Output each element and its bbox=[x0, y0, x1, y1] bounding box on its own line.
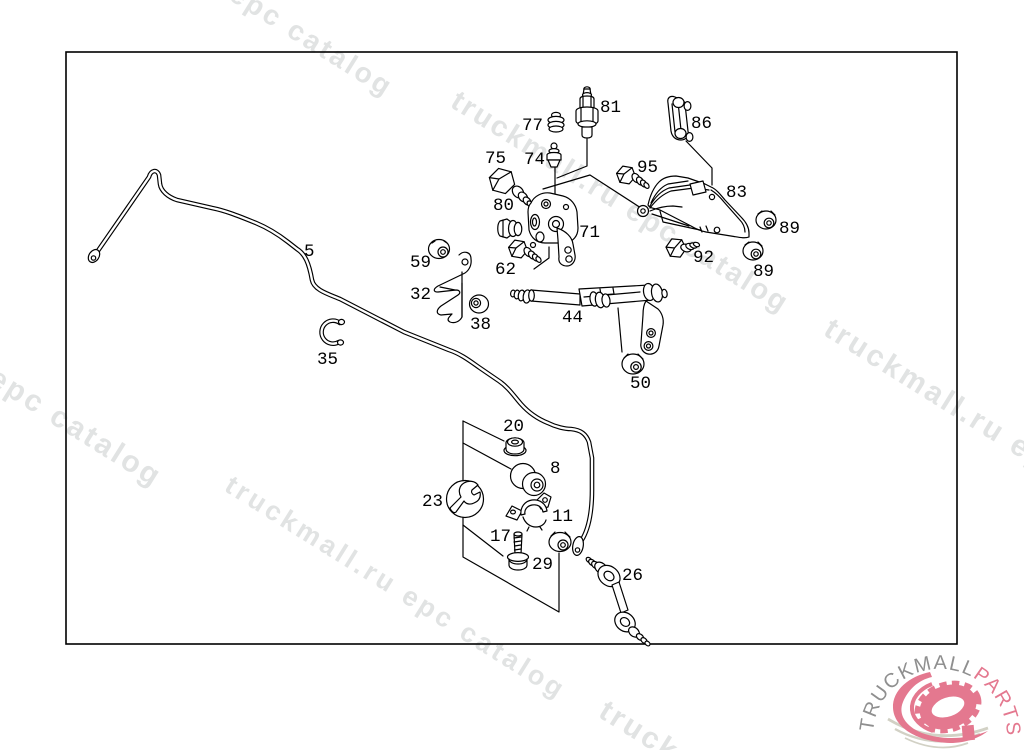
svg-text:62: 62 bbox=[495, 260, 516, 280]
svg-text:8: 8 bbox=[550, 459, 561, 479]
svg-text:83: 83 bbox=[726, 183, 747, 203]
svg-text:95: 95 bbox=[637, 158, 658, 178]
svg-text:77: 77 bbox=[522, 116, 543, 136]
svg-text:92: 92 bbox=[693, 248, 714, 268]
svg-text:11: 11 bbox=[552, 507, 573, 527]
svg-text:74: 74 bbox=[524, 150, 545, 170]
svg-text:81: 81 bbox=[600, 98, 621, 118]
svg-text:23: 23 bbox=[422, 492, 443, 512]
svg-text:20: 20 bbox=[503, 417, 524, 437]
svg-text:26: 26 bbox=[622, 566, 643, 586]
svg-text:32: 32 bbox=[410, 285, 431, 305]
svg-text:89: 89 bbox=[753, 262, 774, 282]
svg-text:35: 35 bbox=[317, 350, 338, 370]
svg-text:86: 86 bbox=[691, 114, 712, 134]
svg-text:80: 80 bbox=[493, 196, 514, 216]
svg-text:44: 44 bbox=[562, 308, 583, 328]
svg-text:75: 75 bbox=[485, 149, 506, 169]
svg-text:71: 71 bbox=[579, 223, 600, 243]
svg-text:50: 50 bbox=[630, 374, 651, 394]
svg-text:17: 17 bbox=[490, 527, 511, 547]
svg-text:5: 5 bbox=[304, 242, 315, 262]
svg-text:89: 89 bbox=[779, 219, 800, 239]
svg-text:29: 29 bbox=[532, 555, 553, 575]
svg-text:59: 59 bbox=[410, 253, 431, 273]
svg-text:38: 38 bbox=[470, 315, 491, 335]
